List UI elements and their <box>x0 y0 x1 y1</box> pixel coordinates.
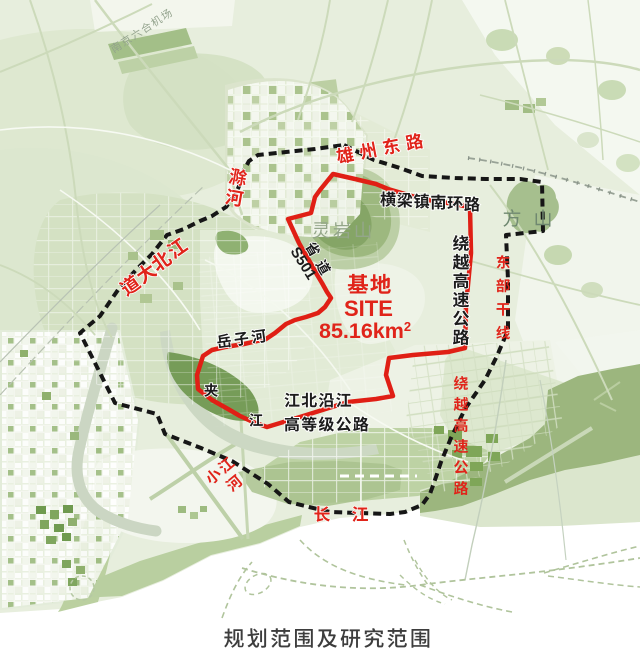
svg-text:85.16km2: 85.16km2 <box>319 319 411 343</box>
svg-text:SITE: SITE <box>344 296 393 321</box>
